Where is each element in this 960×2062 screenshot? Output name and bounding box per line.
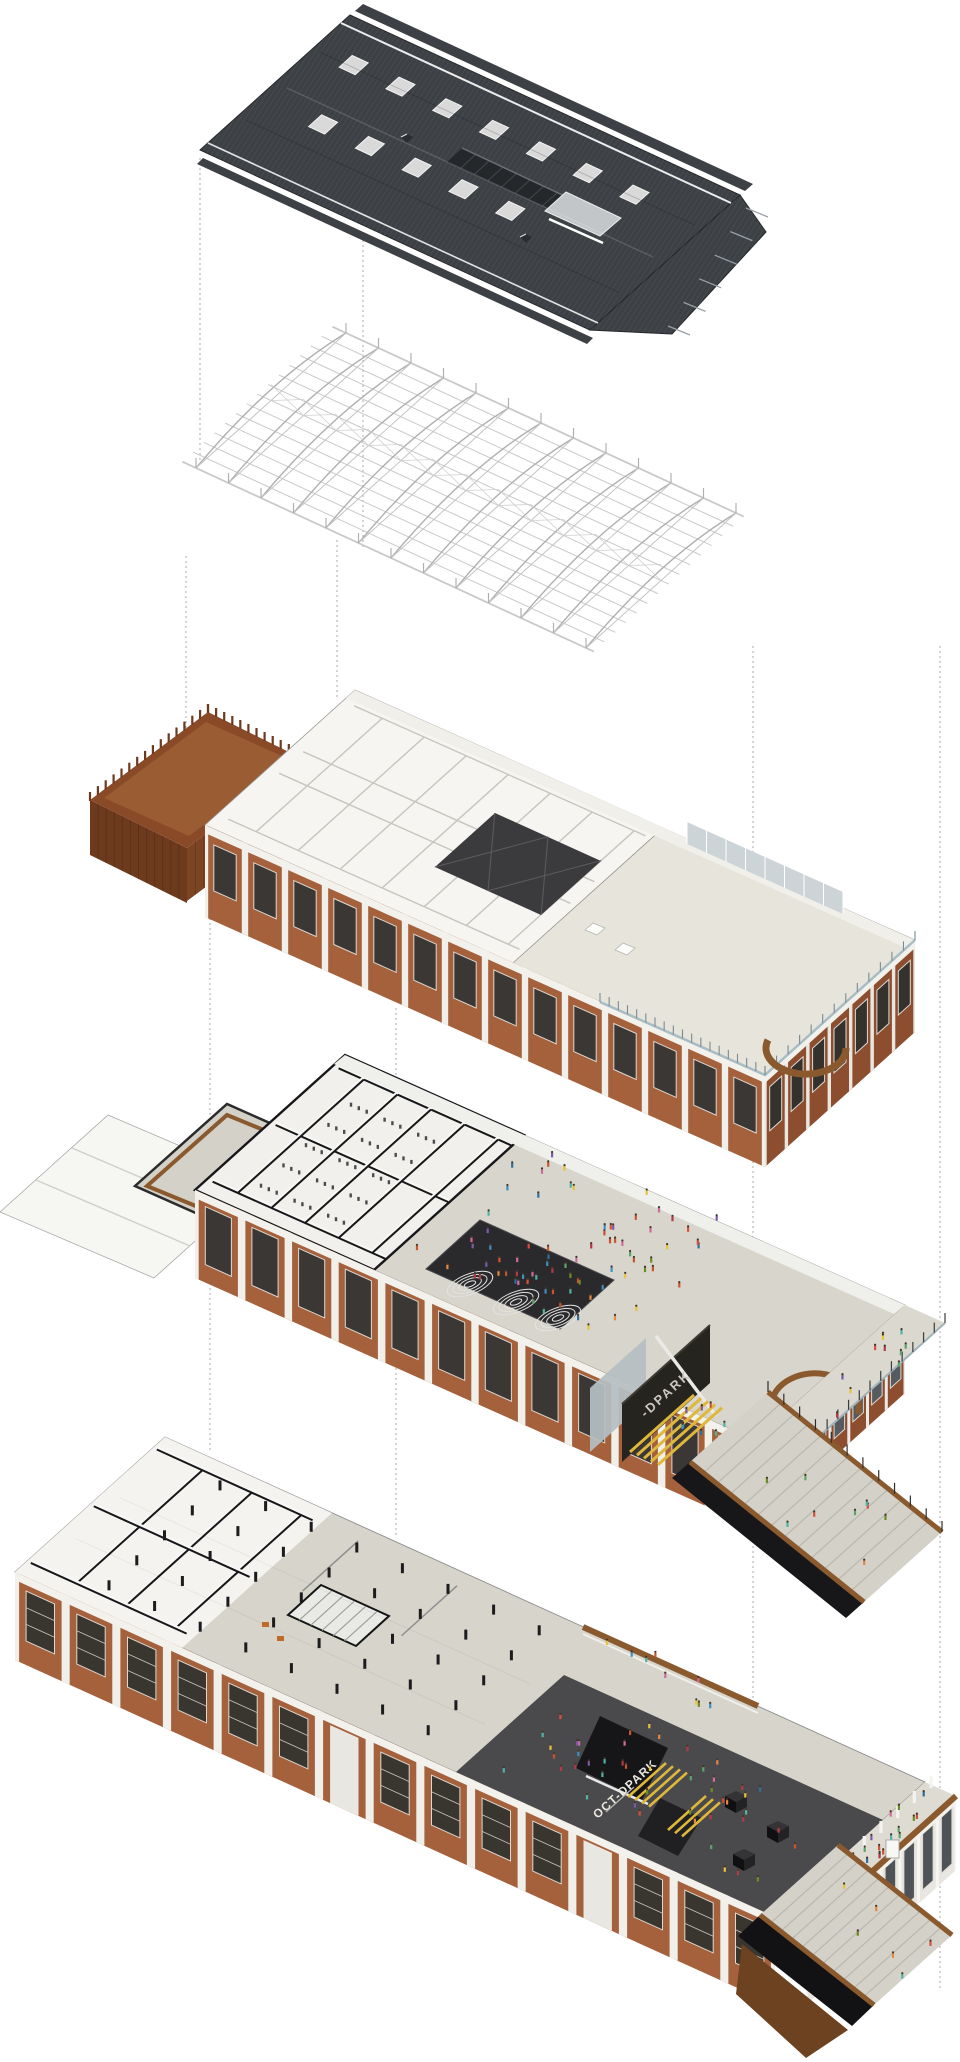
layer-attic-floor <box>89 690 915 1167</box>
person-head <box>576 1739 578 1741</box>
person <box>701 1404 703 1411</box>
person-head <box>574 1763 576 1765</box>
person-body <box>878 1846 880 1851</box>
person <box>543 1307 545 1314</box>
truss-purlin <box>247 404 658 594</box>
column <box>427 1725 430 1735</box>
pilaster <box>722 1056 728 1151</box>
person <box>621 1239 623 1246</box>
pilaster <box>619 1846 627 1938</box>
person <box>635 1305 637 1312</box>
person-head <box>589 1293 591 1295</box>
person-body <box>553 1754 555 1759</box>
person-head <box>506 1184 508 1186</box>
person <box>882 1333 884 1340</box>
column <box>191 1505 194 1515</box>
person <box>535 1273 537 1280</box>
person-body <box>757 1877 759 1882</box>
person <box>690 1774 692 1781</box>
fence-picket <box>89 792 91 801</box>
person-body <box>698 1702 700 1707</box>
person-head <box>590 1242 592 1244</box>
window <box>254 863 276 919</box>
person-head <box>629 1729 631 1731</box>
person <box>633 1256 635 1263</box>
person-head <box>646 1788 648 1790</box>
person-body <box>666 1245 668 1250</box>
seat <box>276 1191 278 1195</box>
person-body <box>489 1245 491 1250</box>
person <box>604 1757 606 1764</box>
truss-purlin <box>300 356 711 546</box>
person <box>588 1759 590 1765</box>
person-body <box>857 1931 859 1936</box>
person-head <box>878 1852 880 1854</box>
seat <box>361 1138 363 1142</box>
person <box>923 1790 925 1797</box>
fence-picket <box>144 751 146 760</box>
person <box>716 1758 718 1765</box>
person <box>916 1813 918 1820</box>
person <box>666 1243 668 1250</box>
person-head <box>578 1739 580 1741</box>
person-body <box>882 1850 884 1855</box>
window <box>694 1059 716 1115</box>
person-head <box>654 1651 656 1653</box>
person <box>606 1639 608 1646</box>
person-head <box>577 1314 579 1316</box>
person-head <box>634 1801 636 1803</box>
person-body <box>614 1316 616 1321</box>
person-body <box>686 1747 688 1752</box>
person <box>578 1739 580 1746</box>
pilaster <box>806 1035 810 1130</box>
person-head <box>564 1262 566 1264</box>
fence-picket <box>128 763 130 772</box>
column <box>363 1659 366 1669</box>
person <box>905 1342 907 1348</box>
pilaster <box>642 1020 648 1115</box>
person <box>625 1762 627 1768</box>
window <box>205 1207 231 1277</box>
fence-picket <box>231 716 233 725</box>
person-head <box>666 1243 668 1245</box>
person <box>671 1215 673 1221</box>
pilaster <box>482 949 488 1044</box>
person-head <box>884 1345 886 1347</box>
person-body <box>601 1772 603 1777</box>
person-body <box>742 1817 744 1822</box>
person-body <box>551 1268 553 1273</box>
person <box>874 1344 876 1351</box>
person <box>645 1656 647 1662</box>
person-body <box>634 1803 636 1808</box>
person <box>547 1160 549 1166</box>
person <box>759 1785 761 1792</box>
column <box>290 1663 293 1673</box>
person-body <box>923 1792 925 1797</box>
person-body <box>898 1362 900 1367</box>
person <box>890 1833 892 1840</box>
column <box>282 1547 285 1557</box>
seat <box>417 1133 419 1137</box>
person-head <box>882 1333 884 1335</box>
person <box>710 1813 712 1820</box>
person-body <box>913 1816 915 1821</box>
person-head <box>528 1242 530 1244</box>
person-head <box>745 1808 747 1810</box>
person <box>882 1848 884 1855</box>
seat <box>343 1221 345 1225</box>
person-body <box>547 1255 549 1260</box>
person-body <box>577 1752 579 1757</box>
person <box>678 1281 680 1288</box>
seat <box>383 1118 385 1122</box>
pilaster <box>442 931 448 1026</box>
person-body <box>602 1285 604 1290</box>
pilaster <box>720 1892 728 1984</box>
person-head <box>866 1857 868 1859</box>
pilaster <box>471 1313 478 1404</box>
person-body <box>604 1759 606 1764</box>
person-head <box>716 1758 718 1760</box>
person-head <box>694 1817 696 1819</box>
person-body <box>890 1835 892 1840</box>
person-body <box>849 1389 851 1394</box>
person-head <box>689 1808 691 1810</box>
person-body <box>624 1274 626 1279</box>
person-body <box>766 1479 768 1484</box>
pilaster <box>264 1685 272 1777</box>
fence-picket <box>175 728 177 737</box>
person <box>522 1273 524 1280</box>
fence-picket <box>280 740 282 749</box>
person-body <box>552 1290 554 1295</box>
person-body <box>737 1871 739 1876</box>
person-head <box>635 1213 637 1215</box>
person <box>553 1752 555 1759</box>
gallery-pier <box>929 1776 932 1788</box>
person-body <box>612 1225 614 1230</box>
seat <box>316 1178 318 1182</box>
person <box>576 1739 578 1746</box>
door <box>584 1840 612 1931</box>
person-body <box>899 1834 901 1839</box>
fence-picket <box>183 722 185 731</box>
person-body <box>474 1274 476 1279</box>
pilaster <box>282 859 288 954</box>
person <box>757 1875 759 1882</box>
person-head <box>652 1265 654 1267</box>
person-body <box>709 1704 711 1709</box>
person-body <box>498 1258 500 1263</box>
column <box>181 1576 184 1586</box>
seat <box>402 1156 404 1160</box>
person-head <box>644 1266 646 1268</box>
person <box>589 1293 591 1299</box>
column <box>328 1568 331 1578</box>
person-head <box>601 1771 603 1773</box>
person <box>629 1250 631 1257</box>
person-head <box>875 1905 877 1907</box>
column <box>153 1601 156 1611</box>
person-head <box>543 1307 545 1309</box>
pilaster <box>242 841 248 936</box>
person-head <box>650 1256 652 1258</box>
person-body <box>547 1246 549 1251</box>
person-head <box>625 1762 627 1764</box>
pilaster <box>670 1869 678 1961</box>
pilaster <box>849 996 852 1091</box>
person-body <box>866 1858 868 1863</box>
person <box>870 1834 872 1840</box>
person-head <box>503 1766 505 1768</box>
person <box>878 1852 880 1859</box>
person-body <box>745 1810 747 1815</box>
person <box>579 1278 581 1285</box>
person-head <box>604 1223 606 1225</box>
seat <box>357 1197 359 1201</box>
window <box>654 1041 676 1097</box>
person-head <box>535 1273 537 1275</box>
fence-picket <box>255 728 257 737</box>
person <box>892 1951 894 1957</box>
person-head <box>898 1360 900 1362</box>
person-head <box>900 1349 902 1351</box>
person <box>664 1672 666 1679</box>
person <box>573 1184 575 1190</box>
person-head <box>545 1287 547 1289</box>
person <box>546 1260 548 1267</box>
fence-picket <box>207 704 209 713</box>
person-head <box>622 1759 624 1761</box>
person-head <box>686 1745 688 1747</box>
person-head <box>697 1676 699 1678</box>
person-head <box>698 1700 700 1702</box>
fence-picket <box>168 733 170 742</box>
person-head <box>531 1270 533 1272</box>
truss-purlin <box>311 346 722 536</box>
person-head <box>633 1256 635 1258</box>
person-head <box>575 1256 577 1258</box>
person-head <box>553 1752 555 1754</box>
person-body <box>685 1409 687 1414</box>
person-head <box>569 1287 571 1289</box>
person <box>611 1265 613 1272</box>
seat <box>309 1206 311 1210</box>
seat <box>365 1200 367 1204</box>
person-head <box>890 1810 892 1812</box>
column <box>401 1563 404 1573</box>
person <box>547 1245 549 1252</box>
person-head <box>546 1260 548 1262</box>
person <box>644 1266 646 1273</box>
person-head <box>711 1786 713 1788</box>
person <box>863 1559 865 1566</box>
column <box>454 1700 457 1710</box>
pilaster <box>238 1209 246 1300</box>
person-body <box>841 1375 843 1380</box>
person <box>685 1407 687 1413</box>
person-body <box>843 1884 845 1889</box>
person-head <box>649 1226 651 1228</box>
pilaster <box>518 1800 526 1892</box>
person <box>658 1733 660 1740</box>
person-body <box>574 1765 576 1770</box>
truss-purlin <box>193 452 604 642</box>
person-head <box>579 1278 581 1280</box>
person <box>723 1421 725 1428</box>
person-head <box>446 1263 448 1265</box>
person-head <box>898 1804 900 1806</box>
person <box>559 1713 561 1719</box>
pilaster <box>62 1593 70 1685</box>
person <box>745 1808 747 1815</box>
pilaster <box>331 1251 338 1342</box>
truss-purlin <box>332 327 743 517</box>
person-head <box>573 1184 575 1186</box>
person-head <box>614 1236 616 1238</box>
person <box>689 1808 691 1814</box>
seat <box>321 1150 323 1154</box>
person-head <box>715 1429 717 1431</box>
person <box>549 1743 551 1750</box>
person-body <box>864 1847 866 1852</box>
person-body <box>603 1231 605 1236</box>
person-head <box>899 1832 901 1834</box>
seat <box>346 1162 348 1166</box>
person-body <box>537 1193 539 1198</box>
fence-picket <box>264 732 266 741</box>
person-body <box>929 1941 931 1946</box>
person-body <box>900 1330 902 1335</box>
person-body <box>532 1299 534 1304</box>
person-body <box>606 1641 608 1646</box>
person-head <box>687 1225 689 1227</box>
person-head <box>611 1265 613 1267</box>
person-head <box>610 1223 612 1225</box>
pilaster <box>762 1074 765 1167</box>
person <box>614 1236 616 1243</box>
window <box>252 1227 278 1297</box>
pilaster <box>416 1754 424 1846</box>
person <box>686 1745 688 1752</box>
seat <box>332 1185 334 1189</box>
seat <box>335 1126 337 1130</box>
person <box>778 1826 780 1832</box>
person-head <box>697 1238 699 1240</box>
person <box>900 1349 902 1355</box>
pilaster <box>565 1355 573 1446</box>
person <box>517 1279 519 1286</box>
person <box>552 1288 554 1294</box>
person-head <box>649 1765 651 1767</box>
person-head <box>551 1151 553 1153</box>
person-head <box>863 1559 865 1561</box>
person <box>898 1826 900 1832</box>
person-body <box>573 1186 575 1191</box>
person-body <box>635 1307 637 1312</box>
pilaster <box>955 1796 957 1871</box>
person-head <box>586 1793 588 1795</box>
person <box>634 1801 636 1808</box>
exploded-axonometric-diagram: -DPARK OCT-DPARK <box>0 0 960 2062</box>
person-head <box>549 1743 551 1745</box>
seat <box>313 1147 315 1151</box>
gallery-pier <box>913 1791 916 1803</box>
person-body <box>804 1476 806 1481</box>
person-body <box>586 1795 588 1800</box>
person-body <box>470 1238 472 1243</box>
person-head <box>487 1227 489 1229</box>
pilaster <box>917 1828 920 1905</box>
column <box>419 1609 422 1619</box>
person-head <box>857 1929 859 1931</box>
person-body <box>528 1244 530 1249</box>
window <box>392 1290 418 1360</box>
person-head <box>648 1722 650 1724</box>
person-head <box>929 1939 931 1941</box>
fence-picket <box>120 769 122 778</box>
person-body <box>639 1811 641 1816</box>
person-head <box>878 1844 880 1846</box>
person-body <box>854 1511 856 1516</box>
person-head <box>843 1882 845 1884</box>
fence-picket <box>160 739 162 748</box>
fence-picket <box>239 720 241 729</box>
person-head <box>742 1815 744 1817</box>
person <box>559 1301 561 1308</box>
person-head <box>516 1256 518 1258</box>
person-head <box>522 1273 524 1275</box>
person <box>624 1272 626 1278</box>
person-body <box>882 1335 884 1340</box>
person-head <box>701 1404 703 1406</box>
pilaster <box>518 1334 526 1425</box>
person-body <box>710 1403 712 1408</box>
seat <box>327 1123 329 1127</box>
person <box>646 1188 648 1195</box>
person <box>766 1477 768 1484</box>
person-body <box>898 1805 900 1810</box>
person-head <box>569 1271 571 1273</box>
person-head <box>559 1713 561 1715</box>
person <box>900 1328 902 1335</box>
person-body <box>549 1745 551 1750</box>
person-head <box>497 1269 499 1271</box>
person <box>604 1223 606 1230</box>
seat <box>260 1184 262 1188</box>
pilaster <box>765 1074 767 1168</box>
person-head <box>737 1869 739 1871</box>
person-body <box>631 1652 633 1657</box>
person-body <box>576 1741 578 1746</box>
column <box>409 1680 412 1690</box>
pilaster <box>828 1016 831 1111</box>
person <box>590 1242 592 1249</box>
column <box>310 1522 313 1532</box>
column <box>135 1555 138 1565</box>
person-head <box>890 1833 892 1835</box>
person-body <box>892 1953 894 1958</box>
seat <box>369 1141 371 1145</box>
person-body <box>505 1271 507 1276</box>
person-head <box>587 1323 589 1325</box>
person-head <box>722 1796 724 1798</box>
seat <box>343 1130 345 1134</box>
person-head <box>485 1260 487 1262</box>
column <box>373 1588 376 1598</box>
